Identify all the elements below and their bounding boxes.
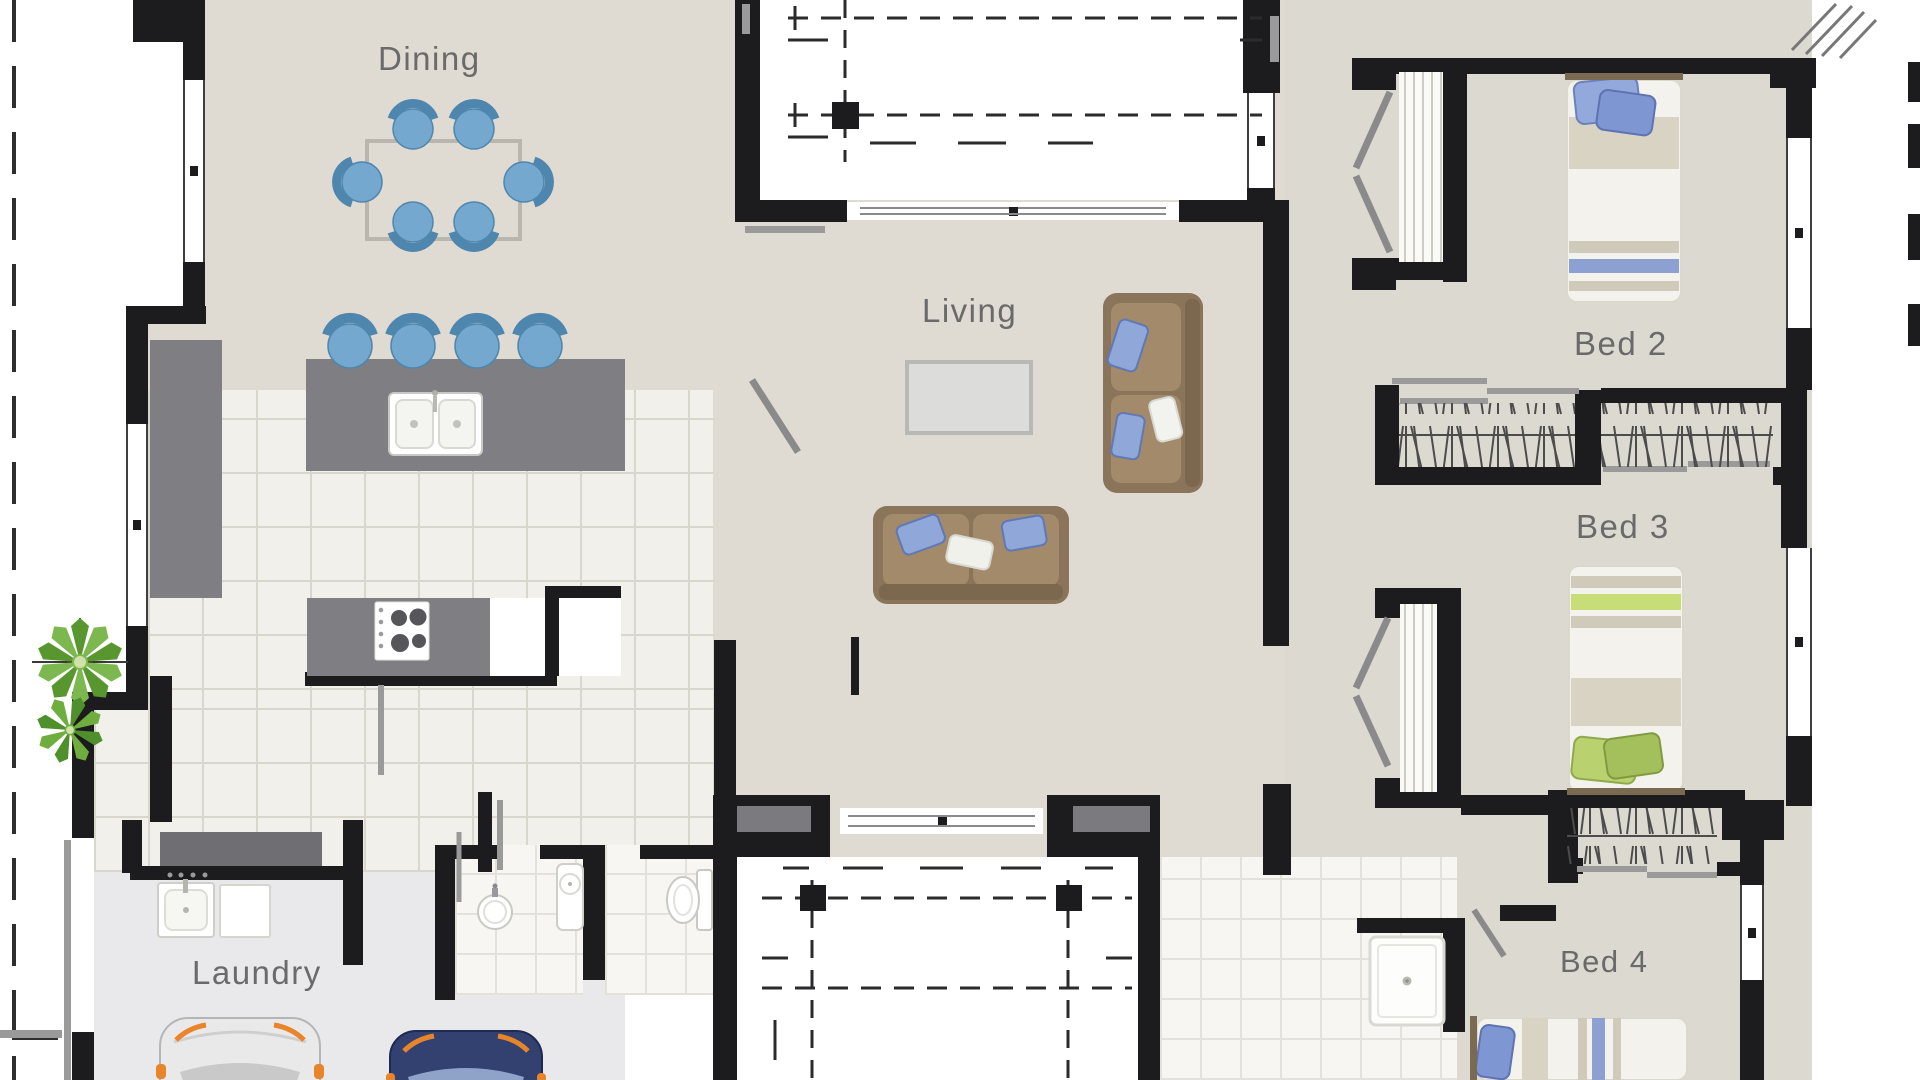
room-label-dining: Dining [378,40,481,78]
wall [1263,784,1291,875]
wall [1443,918,1465,1032]
deck-pier [1073,806,1150,832]
wall [1357,918,1453,933]
wall [133,0,205,42]
robe-rail [1577,866,1647,872]
wc-floor [605,845,713,995]
wall [183,40,205,80]
wall [126,324,148,424]
cooktop-bench [307,598,490,676]
wall [1375,467,1585,485]
wall [1138,857,1160,1080]
fridge-space [490,598,545,676]
laundry-bench [160,832,322,866]
exterior-left [0,0,126,696]
wall [1781,480,1807,548]
wall [343,820,363,965]
wall [713,857,737,1080]
robe-rail [1487,388,1579,394]
wall [1786,328,1812,390]
wall [1786,736,1812,806]
wall [1395,792,1461,808]
wall [714,640,736,796]
window-bed4 [1740,885,1764,980]
wall [72,1032,94,1080]
robe-rail [1688,461,1770,467]
robe-rail [1400,398,1488,404]
edge-dash [1908,62,1920,102]
bottom-deck-floor [737,857,1138,1080]
wall [1717,862,1747,876]
render-line [745,226,825,233]
living-rug [905,360,1033,435]
wall [851,637,859,695]
wall [1575,390,1601,485]
wall [1553,790,1745,808]
robe-rail [1392,378,1487,384]
sliding-door-living-deck [847,202,1179,220]
wall [1352,58,1772,74]
wall [1601,388,1787,403]
wall [72,710,94,838]
edge-dash [1908,214,1920,260]
pantry-space [559,598,621,676]
room-label-bed3: Bed 3 [1576,508,1670,546]
edge-dash [1908,124,1920,168]
wall [1786,72,1812,138]
downpipe [742,4,750,34]
garage-door-line [64,840,71,1080]
wall [1773,467,1807,485]
room-label-bed2: Bed 2 [1574,325,1668,363]
sliding-door-bottom-deck [840,808,1043,834]
window-kitchen [126,424,148,626]
wall [1437,588,1461,808]
deck-pier [737,806,811,832]
downpipe [1270,16,1279,62]
wall [1740,980,1764,1080]
cavity-slider [378,685,384,775]
wall [545,590,559,676]
boundary-line [12,0,16,1080]
powder-room-floor [455,845,583,995]
kitchen-wall-bench [150,340,222,598]
wall [126,306,206,324]
wall [478,792,492,872]
room-label-laundry: Laundry [192,954,322,992]
window-bed2 [1786,138,1812,328]
window-hall [1247,93,1275,188]
edge-dash [1908,304,1920,346]
bathroom-floor [1160,857,1457,1080]
room-label-living: Living [922,292,1017,330]
render-line [0,1030,62,1038]
top-deck-floor [760,0,1265,200]
robe-rail [1647,872,1717,878]
wall [583,845,605,980]
wall [1352,60,1396,90]
island-bench [306,359,625,471]
wall [540,845,600,859]
wall [1443,62,1467,282]
room-label-bed4: Bed 4 [1560,944,1649,980]
wall [435,845,455,1000]
window-bed3 [1786,548,1812,736]
wall [72,692,148,710]
exterior-right [1812,0,1920,1080]
wall [735,200,847,222]
wall [130,866,362,880]
wall [150,676,172,822]
wall [1500,905,1556,921]
floor-plan: Dining Living Bed 2 Bed 3 Bed 4 Laundry [0,0,1920,1080]
wall [1461,795,1561,815]
robe-rail [1603,466,1687,472]
window-dining [183,80,205,262]
wall [640,845,713,859]
wall [1263,200,1289,646]
cavity-slider [497,800,503,870]
